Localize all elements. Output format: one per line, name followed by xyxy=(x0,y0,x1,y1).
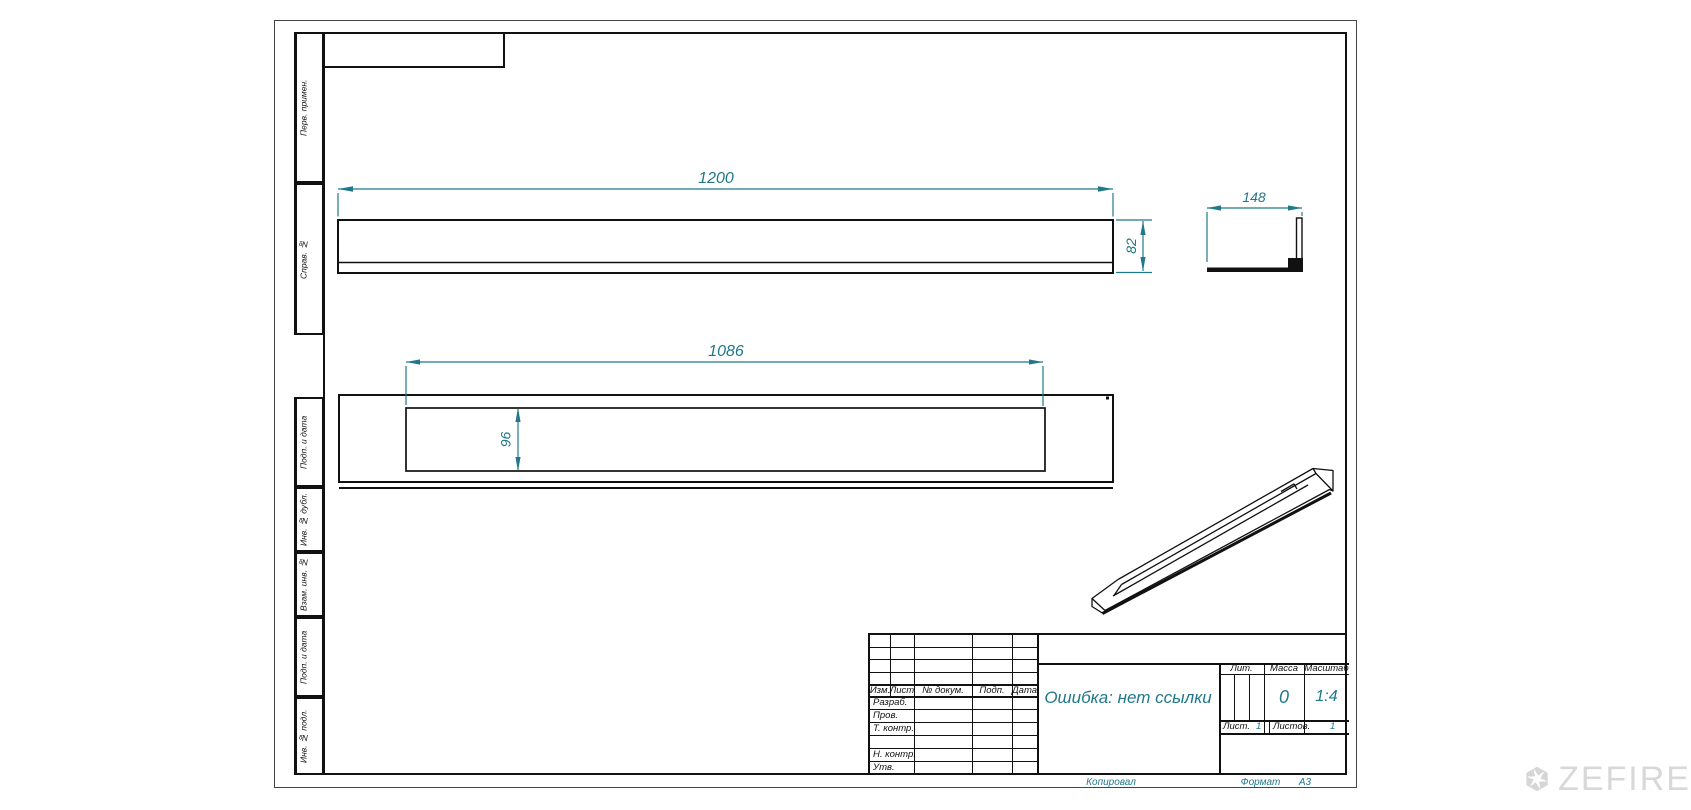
title-block-line xyxy=(870,647,1037,648)
tb-mass-value: 0 xyxy=(1264,674,1304,720)
tb-sheets-label: Листов. xyxy=(1273,720,1313,733)
watermark: ZEFIRE xyxy=(1524,748,1691,810)
tb-lit-label: Лит. xyxy=(1219,663,1264,674)
tb-sheet-label: Лист. xyxy=(1223,720,1249,733)
drawing-views-svg: 1200 82 148 1086 96 xyxy=(0,0,1691,810)
tb-col-data: Дата xyxy=(1012,684,1037,696)
footer-format-value: А3 xyxy=(1290,776,1320,788)
title-block-line xyxy=(870,735,1037,736)
title-block-line xyxy=(1219,663,1221,773)
zefire-logo-icon xyxy=(1524,749,1550,809)
tb-row-tkontr: Т. контр. xyxy=(873,722,917,735)
tb-mass-label: Масса xyxy=(1264,663,1304,674)
dim-depth-label: 148 xyxy=(1242,189,1266,205)
drawing-sheet: Перв. примен. Справ. № Подп. и дата Инв.… xyxy=(0,0,1691,810)
title-block-line xyxy=(1219,733,1349,735)
tb-row-nkontr: Н. контр. xyxy=(873,748,917,761)
plan-view xyxy=(339,395,1113,488)
dim-length-label: 1200 xyxy=(698,170,734,187)
tb-row-razrab: Разраб. xyxy=(873,696,917,709)
side-view xyxy=(1207,218,1303,272)
tb-sheets-value: 1 xyxy=(1330,720,1340,733)
footer-format-label: Формат xyxy=(1233,776,1288,788)
title-block-line xyxy=(1012,635,1013,773)
dim-height-label: 82 xyxy=(1123,238,1139,254)
title-block-line xyxy=(870,659,1037,660)
tb-col-list: Лист xyxy=(890,684,914,696)
tb-col-docnum: № докум. xyxy=(914,684,972,696)
dim-slot-width-label: 96 xyxy=(498,432,514,448)
tb-scale-value: 1:4 xyxy=(1304,674,1349,720)
front-view xyxy=(338,220,1113,273)
tb-sheet-value: 1 xyxy=(1256,720,1266,733)
tb-row-prov: Пров. xyxy=(873,709,917,722)
plan-view-mark xyxy=(1106,397,1109,400)
footer-copied-label: Копировал xyxy=(1066,776,1156,788)
title-block-line xyxy=(1234,674,1235,720)
tb-col-izm: Изм. xyxy=(870,684,890,696)
tb-row-utv: Утв. xyxy=(873,761,917,774)
title-block-line xyxy=(870,672,1037,673)
tb-doc-name: Ошибка: нет ссылки xyxy=(1037,663,1219,733)
tb-scale-label: Масштаб xyxy=(1304,663,1349,674)
isometric-view xyxy=(1092,469,1333,614)
tb-col-podp: Подп. xyxy=(972,684,1012,696)
title-block-line xyxy=(972,635,973,773)
title-block: Изм. Лист № докум. Подп. Дата Разраб. Пр… xyxy=(868,633,1347,775)
title-block-line xyxy=(1249,674,1250,720)
dim-slot-length-label: 1086 xyxy=(708,343,744,360)
watermark-brand-text: ZEFIRE xyxy=(1558,760,1691,799)
